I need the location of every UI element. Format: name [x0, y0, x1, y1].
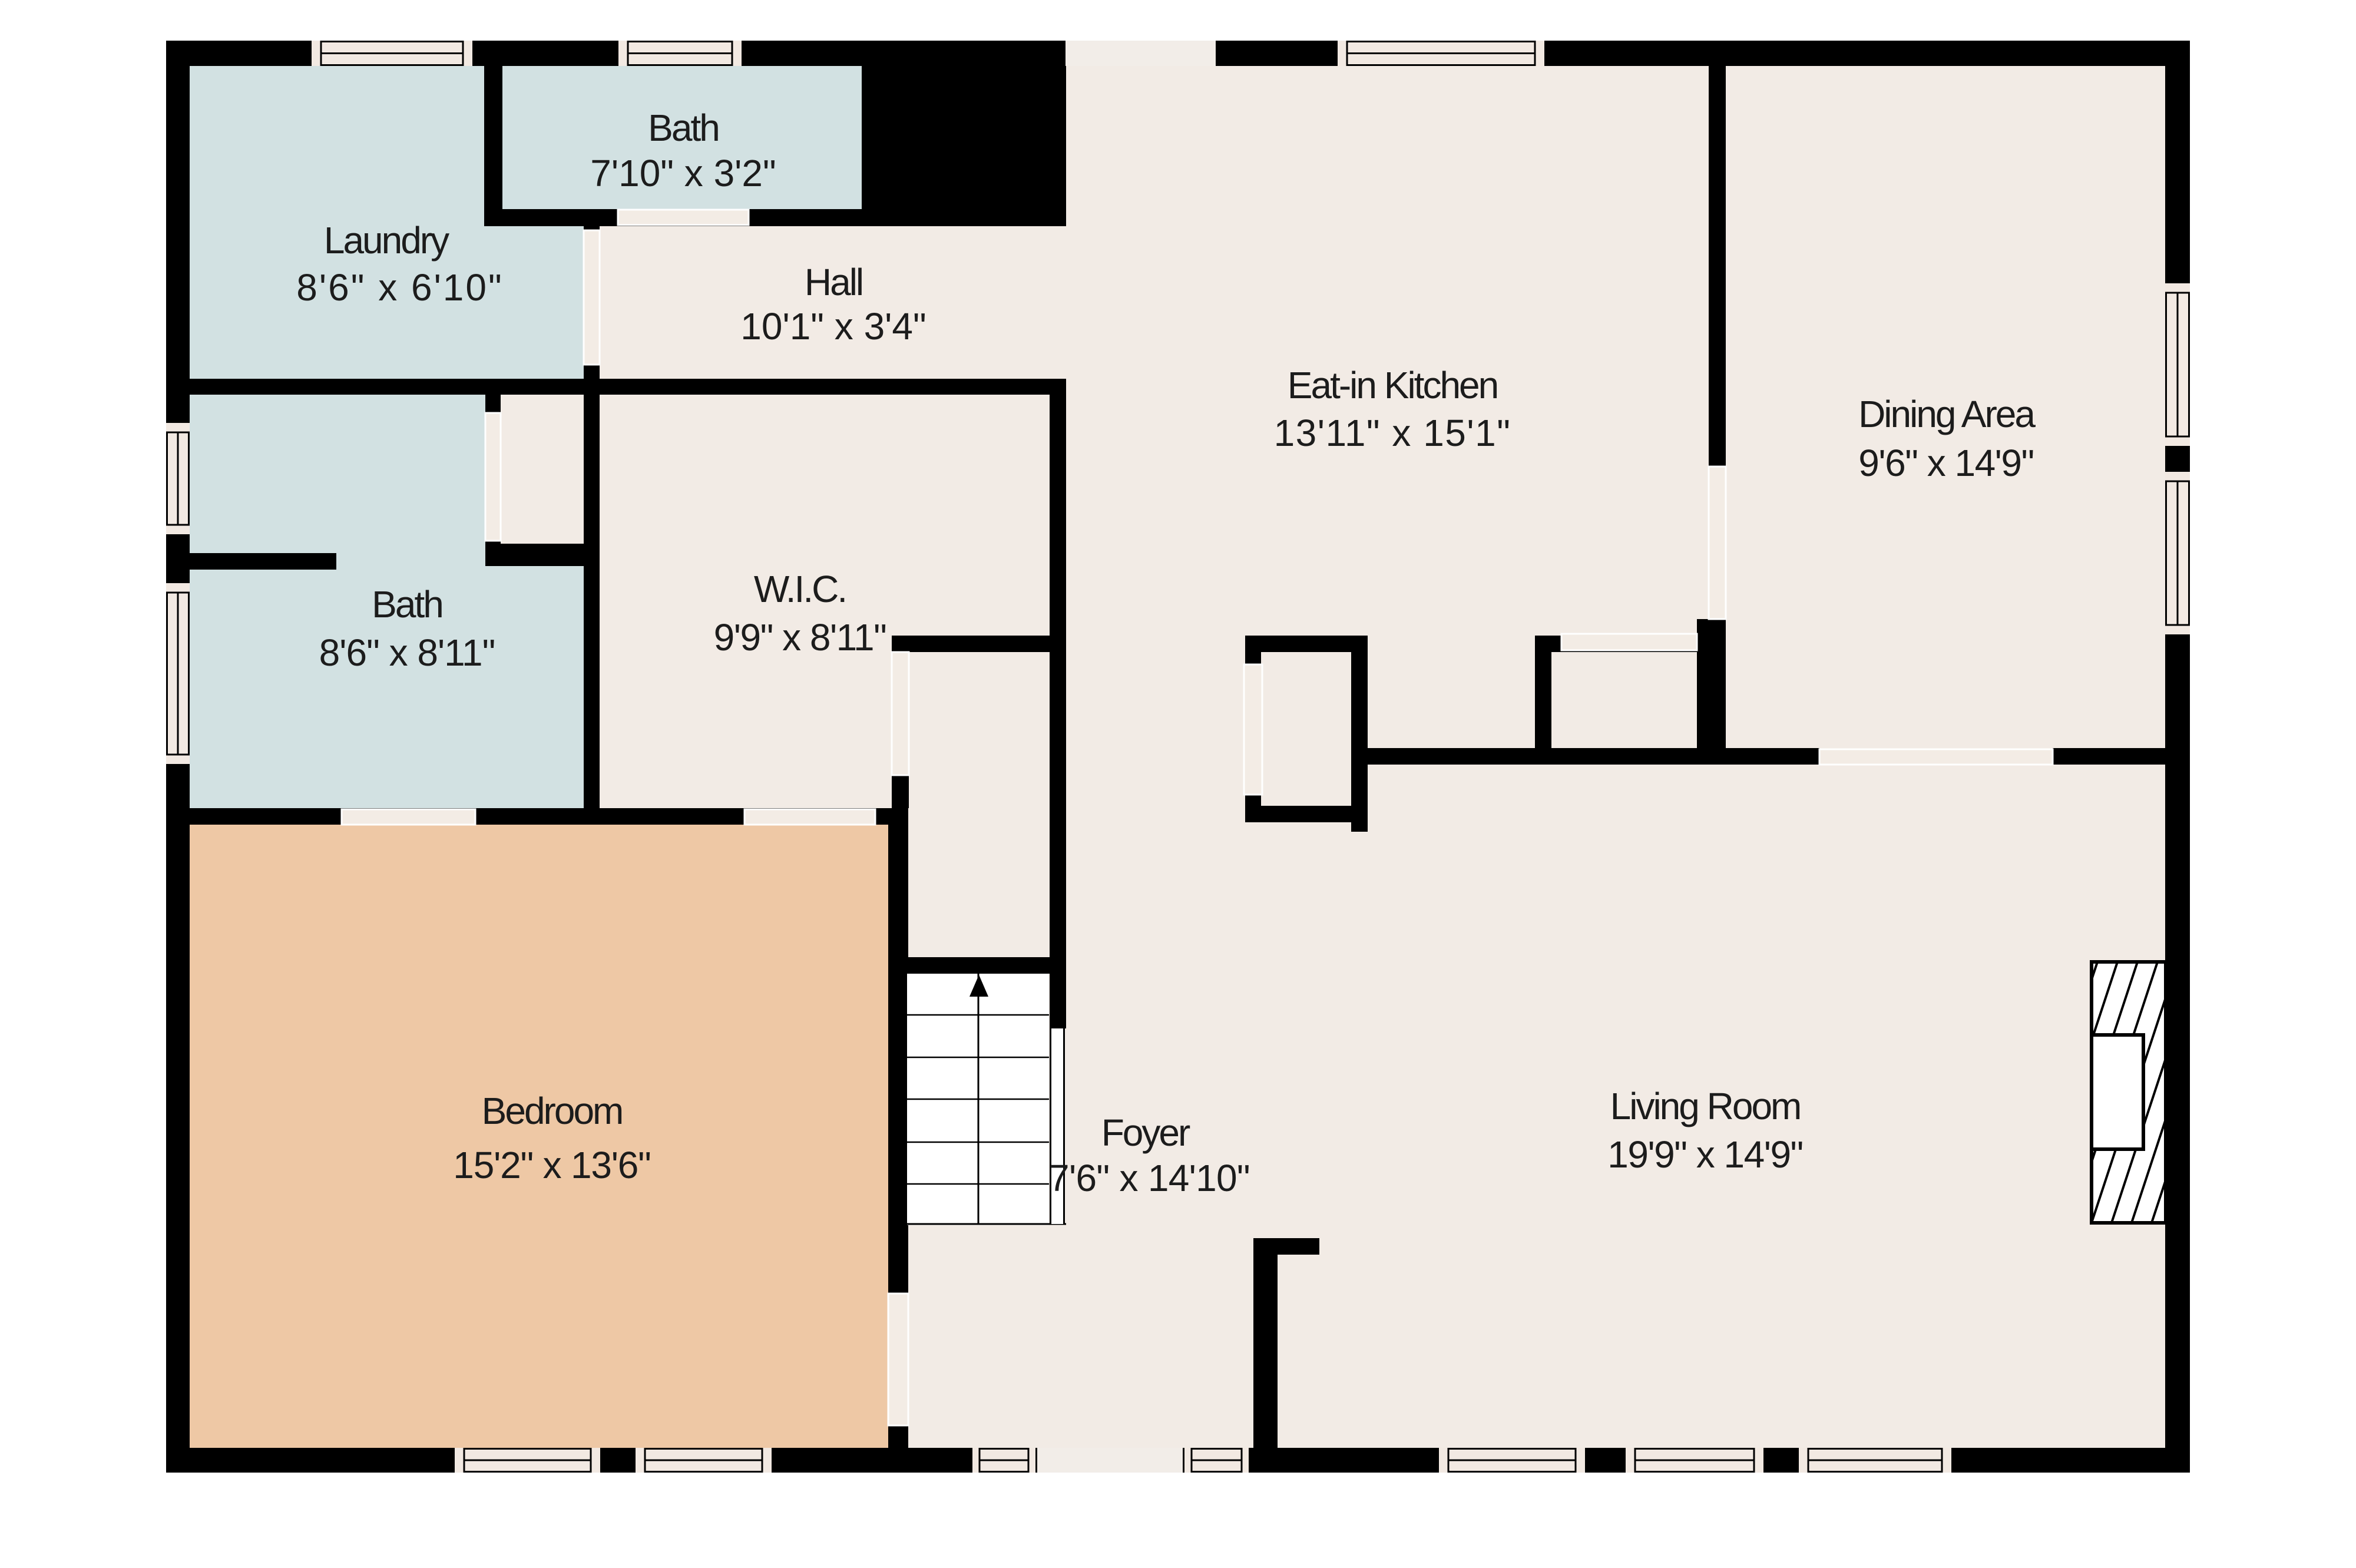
svg-text:13'11" x 15'1": 13'11" x 15'1" [1274, 412, 1511, 454]
svg-text:Bedroom: Bedroom [482, 1090, 623, 1132]
svg-text:W.I.C.: W.I.C. [754, 568, 846, 610]
svg-text:7'10" x 3'2": 7'10" x 3'2" [590, 152, 776, 194]
svg-text:9'9" x 8'11": 9'9" x 8'11" [714, 616, 886, 659]
svg-text:7'6" x 14'10": 7'6" x 14'10" [1048, 1157, 1250, 1199]
svg-text:Eat-in Kitchen: Eat-in Kitchen [1288, 364, 1497, 406]
svg-text:Laundry: Laundry [324, 219, 449, 262]
svg-text:8'6" x 8'11": 8'6" x 8'11" [319, 631, 495, 674]
svg-text:Foyer: Foyer [1101, 1112, 1190, 1154]
svg-text:9'6" x 14'9": 9'6" x 14'9" [1858, 442, 2033, 484]
svg-text:19'9" x 14'9": 19'9" x 14'9" [1607, 1133, 1803, 1176]
svg-text:Bath: Bath [648, 107, 719, 149]
svg-text:10'1" x 3'4": 10'1" x 3'4" [740, 305, 926, 348]
svg-text:Bath: Bath [372, 583, 442, 626]
svg-text:Dining Area: Dining Area [1858, 393, 2036, 435]
svg-text:Living Room: Living Room [1610, 1085, 1801, 1127]
svg-text:Hall: Hall [805, 261, 862, 303]
svg-text:15'2" x 13'6": 15'2" x 13'6" [453, 1144, 650, 1186]
svg-text:8'6" x 6'10": 8'6" x 6'10" [296, 266, 503, 309]
